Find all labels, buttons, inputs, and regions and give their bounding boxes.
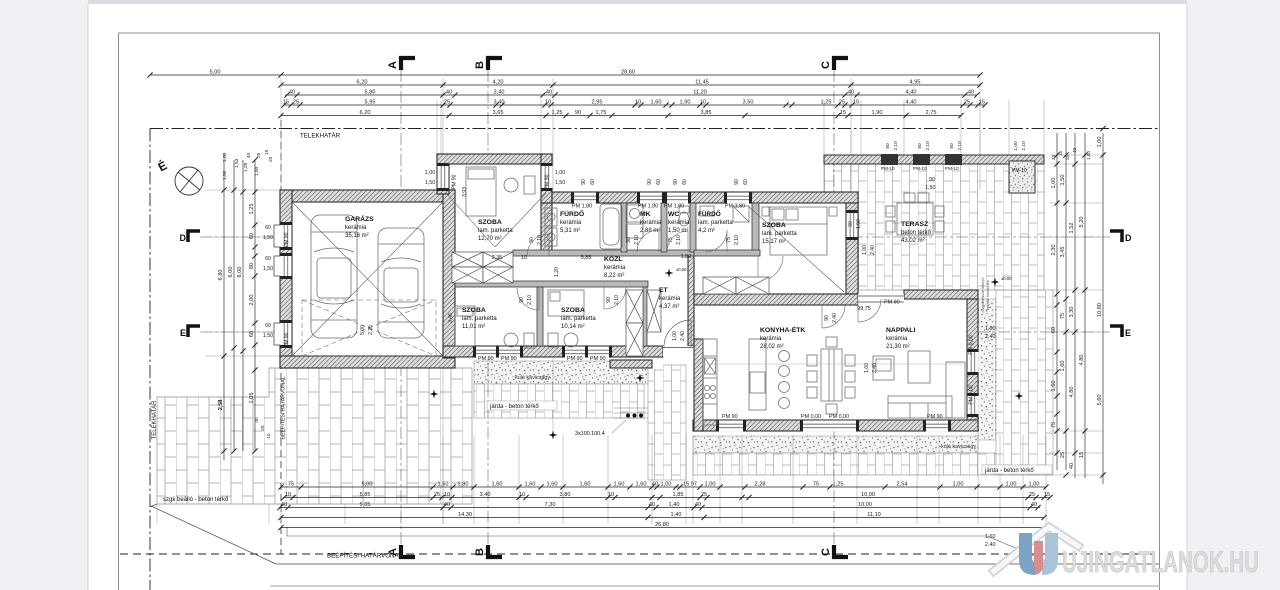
svg-text:4,80: 4,80 — [1079, 355, 1085, 366]
svg-text:1,50: 1,50 — [263, 266, 273, 272]
svg-text:2,40: 2,40 — [870, 245, 876, 255]
svg-text:43,02 m²: 43,02 m² — [901, 238, 925, 244]
svg-text:40: 40 — [446, 89, 452, 95]
svg-text:7,30: 7,30 — [545, 502, 556, 508]
svg-text:60: 60 — [265, 225, 271, 231]
svg-text:4,95: 4,95 — [910, 79, 921, 85]
svg-text:A: A — [387, 548, 399, 556]
svg-text:1,75: 1,75 — [596, 110, 607, 116]
svg-text:50: 50 — [917, 143, 923, 149]
svg-text:2,95: 2,95 — [592, 99, 603, 105]
svg-text:60: 60 — [682, 179, 688, 185]
svg-text:1,60: 1,60 — [1051, 381, 1057, 392]
svg-text:1,00: 1,00 — [1097, 137, 1103, 148]
svg-text:5,00: 5,00 — [210, 69, 221, 75]
svg-text:3,80: 3,80 — [560, 492, 571, 498]
svg-text:NAPPALI: NAPPALI — [886, 327, 915, 334]
svg-text:10: 10 — [519, 492, 525, 498]
svg-text:1,53: 1,53 — [234, 158, 240, 168]
svg-text:1,60: 1,60 — [651, 99, 662, 105]
svg-text:KONYHA-ÉTK: KONYHA-ÉTK — [760, 325, 805, 334]
svg-text:1,25: 1,25 — [249, 204, 255, 215]
svg-text:2,10: 2,10 — [537, 235, 543, 245]
svg-text:PM 1,80: PM 1,80 — [572, 204, 592, 210]
svg-text:40: 40 — [848, 89, 854, 95]
svg-text:A: A — [387, 61, 399, 69]
svg-text:1,90: 1,90 — [680, 99, 691, 105]
svg-text:GARÁZS: GARÁZS — [345, 214, 374, 223]
svg-text:1,40: 1,40 — [669, 502, 680, 508]
svg-text:3,40: 3,40 — [494, 89, 505, 95]
svg-text:2,36: 2,36 — [492, 255, 503, 261]
svg-text:90: 90 — [929, 177, 935, 183]
svg-text:90: 90 — [626, 237, 632, 243]
svg-text:40: 40 — [649, 502, 655, 508]
svg-text:25: 25 — [701, 492, 707, 498]
svg-text:1,25: 1,25 — [243, 162, 249, 172]
svg-text:90: 90 — [581, 179, 587, 185]
svg-text:1,60: 1,60 — [547, 481, 558, 487]
svg-text:60: 60 — [265, 256, 271, 262]
svg-text:1,50: 1,50 — [263, 333, 273, 339]
svg-text:kerámia: kerámia — [604, 265, 626, 271]
svg-text:PM 90: PM 90 — [545, 174, 551, 189]
svg-text:2,25: 2,25 — [368, 325, 374, 335]
svg-text:szgk beálló - beton térkő: szgk beálló - beton térkő — [163, 497, 229, 503]
svg-text:75: 75 — [1051, 422, 1057, 428]
svg-text:beton térkő: beton térkő — [901, 230, 932, 236]
svg-text:1,40: 1,40 — [671, 512, 682, 518]
svg-text:B: B — [474, 61, 486, 69]
svg-text:2,40: 2,40 — [832, 313, 838, 323]
svg-text:1,60: 1,60 — [864, 363, 870, 373]
svg-text:kerámia: kerámia — [668, 220, 690, 226]
svg-text:UJINGATLANOK.HU: UJINGATLANOK.HU — [1062, 546, 1259, 579]
svg-text:99,75: 99,75 — [857, 306, 871, 312]
svg-text:SZOBA: SZOBA — [478, 219, 502, 226]
svg-text:D: D — [1125, 233, 1132, 243]
svg-text:PM 90: PM 90 — [722, 414, 738, 420]
svg-text:5,60: 5,60 — [1097, 395, 1103, 406]
svg-text:1,00: 1,00 — [222, 152, 228, 162]
svg-text:40: 40 — [1069, 463, 1075, 469]
svg-text:25: 25 — [434, 492, 440, 498]
svg-text:PM 0,00: PM 0,00 — [829, 414, 849, 420]
svg-text:PM 90: PM 90 — [284, 332, 290, 347]
svg-text:2,10: 2,10 — [957, 141, 963, 151]
svg-text:40: 40 — [695, 502, 701, 508]
svg-text:10: 10 — [608, 492, 614, 498]
svg-text:lam. parketta: lam. parketta — [762, 231, 797, 237]
svg-text:10: 10 — [635, 99, 641, 105]
svg-text:40: 40 — [1031, 502, 1037, 508]
svg-text:1,00: 1,00 — [661, 481, 672, 487]
svg-text:1,50: 1,50 — [1060, 175, 1066, 186]
svg-text:15: 15 — [1044, 492, 1050, 498]
svg-text:1,00: 1,00 — [862, 245, 868, 255]
svg-text:75: 75 — [1060, 313, 1066, 319]
svg-text:FÜRDŐ: FÜRDŐ — [698, 209, 721, 218]
svg-text:75: 75 — [726, 237, 732, 243]
svg-text:1,50: 1,50 — [263, 235, 273, 241]
svg-text:PM 90: PM 90 — [284, 232, 290, 247]
svg-text:lam. parketta: lam. parketta — [478, 228, 513, 234]
svg-text:15: 15 — [266, 433, 271, 439]
svg-text:3,40: 3,40 — [494, 99, 505, 105]
svg-text:50: 50 — [885, 143, 891, 149]
svg-text:1,60: 1,60 — [985, 534, 996, 540]
svg-text:E: E — [180, 328, 186, 338]
svg-text:TELEKHATÁR: TELEKHATÁR — [151, 400, 158, 440]
svg-text:60: 60 — [249, 233, 255, 239]
svg-text:11,45: 11,45 — [695, 79, 709, 85]
svg-text:1,52: 1,52 — [1069, 223, 1075, 234]
svg-text:4,20: 4,20 — [493, 79, 504, 85]
svg-text:25: 25 — [1060, 452, 1066, 458]
svg-text:3,45: 3,45 — [1060, 247, 1066, 258]
svg-text:PM 1,80: PM 1,80 — [664, 204, 684, 210]
svg-text:3x100.100.4: 3x100.100.4 — [575, 431, 605, 437]
svg-text:90: 90 — [606, 297, 612, 303]
svg-text:6,80: 6,80 — [218, 270, 224, 281]
svg-text:35,16 m²: 35,16 m² — [345, 233, 369, 239]
svg-text:B: B — [474, 548, 486, 556]
svg-text:1,00: 1,00 — [1086, 151, 1091, 160]
svg-text:50: 50 — [949, 143, 955, 149]
svg-text:2,10: 2,10 — [734, 235, 740, 245]
svg-text:1,05: 1,05 — [249, 393, 255, 404]
svg-text:lam. parketta: lam. parketta — [462, 316, 497, 322]
svg-text:60: 60 — [1051, 327, 1057, 333]
svg-text:2,40: 2,40 — [680, 331, 686, 341]
svg-text:TELEKHATÁR: TELEKHATÁR — [300, 133, 341, 140]
svg-text:14,30: 14,30 — [458, 512, 472, 518]
svg-text:15: 15 — [1058, 150, 1063, 156]
svg-text:PM 90: PM 90 — [884, 300, 900, 306]
svg-text:6,00: 6,00 — [237, 267, 243, 278]
svg-text:1,00: 1,00 — [705, 481, 716, 487]
svg-text:10,00: 10,00 — [858, 502, 872, 508]
svg-text:1,50: 1,50 — [555, 180, 566, 186]
svg-text:90: 90 — [848, 221, 854, 227]
svg-text:5,00: 5,00 — [362, 481, 373, 487]
svg-text:kerámia: kerámia — [760, 336, 782, 342]
svg-text:3,65: 3,65 — [493, 110, 504, 116]
svg-text:PM 0,00: PM 0,00 — [969, 335, 975, 354]
svg-text:3,46: 3,46 — [448, 313, 454, 323]
svg-text:3,93: 3,93 — [462, 187, 468, 197]
svg-text:5,20: 5,20 — [1079, 217, 1085, 228]
svg-text:4,40: 4,40 — [906, 99, 917, 105]
svg-text:PM 0,00: PM 0,00 — [801, 414, 821, 420]
svg-text:3,40: 3,40 — [480, 492, 491, 498]
svg-text:1,00: 1,00 — [953, 481, 964, 487]
svg-text:40: 40 — [546, 89, 552, 95]
svg-text:90: 90 — [529, 237, 535, 243]
svg-text:90: 90 — [519, 297, 525, 303]
svg-text:60: 60 — [249, 331, 255, 337]
svg-text:2,10: 2,10 — [925, 141, 931, 151]
svg-text:1,25: 1,25 — [552, 110, 563, 116]
svg-text:1,20: 1,20 — [554, 267, 560, 277]
svg-text:10: 10 — [545, 99, 551, 105]
svg-text:15: 15 — [853, 99, 859, 105]
svg-text:6,20: 6,20 — [357, 79, 368, 85]
svg-text:PM 90: PM 90 — [567, 356, 583, 362]
svg-text:1,80: 1,80 — [681, 254, 692, 260]
svg-text:SZOBA: SZOBA — [462, 307, 486, 314]
svg-text:MK: MK — [640, 211, 651, 218]
svg-text:PM 90: PM 90 — [452, 174, 458, 189]
svg-text:5,85: 5,85 — [360, 492, 371, 498]
svg-text:lam. parketta: lam. parketta — [561, 316, 596, 322]
svg-text:60: 60 — [590, 179, 596, 185]
svg-text:2,10: 2,10 — [676, 235, 682, 245]
svg-text:40: 40 — [281, 502, 287, 508]
svg-text:tetővíz elvezetés: tetővíz elvezetés — [985, 280, 990, 310]
svg-text:kerámia: kerámia — [345, 225, 367, 231]
svg-text:D: D — [180, 233, 187, 243]
svg-text:40: 40 — [968, 89, 974, 95]
svg-text:2,75: 2,75 — [926, 110, 937, 116]
svg-text:PM 90: PM 90 — [590, 356, 606, 362]
svg-text:PM-10: PM-10 — [1012, 168, 1027, 174]
svg-text:±0,00: ±0,00 — [676, 267, 687, 272]
svg-text:PM-10: PM-10 — [881, 166, 895, 171]
svg-text:5,31 m²: 5,31 m² — [560, 228, 580, 234]
svg-text:WC: WC — [668, 211, 679, 218]
svg-text:5,00: 5,00 — [360, 325, 366, 335]
svg-text:10: 10 — [700, 99, 706, 105]
svg-text:lam. parketta: lam. parketta — [698, 220, 733, 226]
svg-text:15: 15 — [1079, 452, 1085, 458]
svg-text:90: 90 — [673, 179, 679, 185]
svg-text:2,40: 2,40 — [985, 542, 996, 548]
svg-text:TERASZ: TERASZ — [901, 221, 928, 228]
svg-text:1,50: 1,50 — [925, 185, 936, 191]
svg-text:2,10: 2,10 — [1021, 141, 1027, 151]
svg-text:90: 90 — [575, 110, 581, 116]
svg-text:4,2 m²: 4,2 m² — [698, 228, 715, 234]
svg-text:15: 15 — [979, 99, 985, 105]
svg-text:SZOBA: SZOBA — [561, 307, 585, 314]
svg-text:15: 15 — [283, 99, 289, 105]
svg-text:2,10: 2,10 — [527, 295, 533, 305]
svg-text:PM 90: PM 90 — [501, 356, 517, 362]
svg-text:10: 10 — [444, 492, 450, 498]
svg-text:1,60: 1,60 — [525, 481, 536, 487]
svg-text:járda - beton térkő: járda - beton térkő — [984, 468, 1034, 474]
svg-text:1,60: 1,60 — [492, 481, 503, 487]
svg-text:kerámia: kerámia — [659, 296, 681, 302]
svg-text:15,17 m²: 15,17 m² — [762, 239, 786, 245]
svg-text:3,85: 3,85 — [701, 110, 712, 116]
svg-text:60: 60 — [656, 179, 662, 185]
svg-text:10,80: 10,80 — [1097, 303, 1103, 317]
svg-text:75: 75 — [288, 481, 294, 487]
svg-text:4,80: 4,80 — [1069, 387, 1075, 398]
svg-text:1,00: 1,00 — [1029, 481, 1040, 487]
svg-text:kerámia: kerámia — [886, 336, 908, 342]
svg-text:PM 0,00: PM 0,00 — [969, 385, 975, 404]
svg-text:25: 25 — [839, 99, 845, 105]
svg-text:C: C — [820, 61, 832, 69]
svg-text:járda - beton térkő: járda - beton térkő — [489, 404, 539, 410]
svg-text:2,28: 2,28 — [755, 481, 766, 487]
svg-text:2,10: 2,10 — [634, 235, 640, 245]
svg-text:90: 90 — [824, 315, 830, 321]
svg-text:2,88 m²: 2,88 m² — [640, 228, 660, 234]
svg-text:1,90: 1,90 — [872, 110, 883, 116]
svg-text:1,25: 1,25 — [821, 99, 832, 105]
svg-text:PM 90: PM 90 — [478, 356, 494, 362]
svg-text:1,85: 1,85 — [673, 492, 684, 498]
svg-text:kerámia: kerámia — [640, 220, 662, 226]
svg-text:15: 15 — [840, 110, 846, 116]
svg-text:PM-10: PM-10 — [913, 166, 927, 171]
svg-text:20: 20 — [268, 156, 274, 162]
svg-text:1,00: 1,00 — [555, 170, 566, 176]
svg-text:40: 40 — [444, 502, 450, 508]
svg-text:PM 1,80: PM 1,80 — [725, 204, 745, 210]
svg-text:2,30: 2,30 — [1051, 245, 1057, 256]
svg-text:2,40: 2,40 — [985, 334, 996, 340]
svg-text:11,01 m²: 11,01 m² — [462, 324, 485, 330]
svg-text:28,60: 28,60 — [621, 69, 635, 75]
svg-text:4,37 m²: 4,37 m² — [659, 304, 679, 310]
svg-text:1,60: 1,60 — [580, 481, 591, 487]
svg-text:5,85: 5,85 — [581, 255, 592, 261]
svg-text:40: 40 — [1072, 147, 1077, 153]
svg-text:60: 60 — [265, 323, 271, 329]
svg-text:1,60: 1,60 — [1060, 361, 1066, 372]
svg-text:1,60: 1,60 — [438, 481, 449, 487]
svg-text:5,80: 5,80 — [365, 89, 376, 95]
svg-text:FÜRDŐ: FÜRDŐ — [560, 209, 584, 218]
svg-text:2,58: 2,58 — [218, 400, 224, 411]
svg-text:10,14 m²: 10,14 m² — [561, 324, 585, 330]
svg-text:1,00: 1,00 — [672, 331, 678, 341]
svg-text:2,00: 2,00 — [249, 295, 255, 306]
svg-text:2,10: 2,10 — [614, 295, 620, 305]
svg-text:2,54: 2,54 — [897, 481, 908, 487]
svg-text:1,00: 1,00 — [1013, 141, 1019, 151]
svg-text:11,20: 11,20 — [693, 89, 707, 95]
svg-text:25: 25 — [964, 99, 970, 105]
svg-text:90: 90 — [734, 179, 740, 185]
svg-text:25: 25 — [1065, 154, 1070, 160]
svg-text:3,50: 3,50 — [743, 99, 754, 105]
svg-text:PM 90: PM 90 — [927, 414, 943, 420]
svg-text:25: 25 — [444, 99, 450, 105]
svg-text:1,80: 1,80 — [458, 481, 469, 487]
svg-text:1,60: 1,60 — [636, 481, 647, 487]
svg-text:10: 10 — [285, 492, 291, 498]
svg-text:4,40: 4,40 — [906, 89, 917, 95]
svg-text:25: 25 — [293, 99, 299, 105]
svg-text:1,50: 1,50 — [856, 219, 862, 229]
svg-text:6,00: 6,00 — [228, 267, 234, 278]
svg-text:2,40: 2,40 — [872, 363, 878, 373]
svg-text:kulé kavicságy: kulé kavicságy — [515, 375, 550, 381]
svg-text:40: 40 — [246, 152, 252, 158]
svg-text:26,80: 26,80 — [655, 522, 669, 528]
svg-text:1,60: 1,60 — [614, 481, 625, 487]
svg-text:90: 90 — [647, 179, 653, 185]
svg-text:6,20: 6,20 — [360, 110, 371, 116]
svg-text:1,50 m²: 1,50 m² — [668, 228, 688, 234]
svg-text:10,90: 10,90 — [861, 492, 875, 498]
svg-text:15 97: 15 97 — [683, 481, 697, 487]
svg-text:kerámia: kerámia — [560, 220, 582, 226]
svg-text:25: 25 — [1029, 492, 1035, 498]
svg-text:12,70 m²: 12,70 m² — [478, 236, 502, 242]
svg-text:25: 25 — [256, 152, 262, 158]
svg-text:28,02 m²: 28,02 m² — [760, 344, 784, 350]
svg-text:21,30 m²: 21,30 m² — [886, 344, 910, 350]
svg-text:75: 75 — [668, 237, 674, 243]
svg-text:5,05: 5,05 — [360, 502, 371, 508]
svg-text:C: C — [820, 548, 832, 556]
svg-text:kulé kavicságy: kulé kavicságy — [941, 444, 976, 450]
svg-text:±0,00: ±0,00 — [1001, 276, 1012, 281]
svg-text:1,50: 1,50 — [425, 180, 436, 186]
svg-text:8,22 m²: 8,22 m² — [604, 273, 624, 279]
svg-text:40: 40 — [652, 481, 658, 487]
svg-text:1,25: 1,25 — [833, 481, 844, 487]
svg-text:1,00: 1,00 — [1006, 481, 1017, 487]
svg-text:PM 1,80: PM 1,80 — [638, 204, 658, 210]
svg-text:5,95: 5,95 — [365, 99, 376, 105]
svg-text:40: 40 — [289, 89, 295, 95]
svg-text:15: 15 — [264, 149, 270, 155]
svg-text:1,00: 1,00 — [425, 170, 436, 176]
svg-text:11,10: 11,10 — [867, 512, 881, 518]
svg-text:BEÉPÍTÉSI HATÁRVONAL: BEÉPÍTÉSI HATÁRVONAL — [280, 376, 287, 439]
svg-text:ET: ET — [659, 287, 669, 294]
svg-text:10: 10 — [521, 255, 527, 261]
svg-text:1,90: 1,90 — [254, 166, 260, 176]
svg-text:33: 33 — [1051, 154, 1056, 160]
svg-text:75: 75 — [813, 481, 819, 487]
svg-text:25: 25 — [260, 425, 265, 431]
svg-text:3,30: 3,30 — [1069, 307, 1075, 318]
svg-text:KÖZL: KÖZL — [604, 254, 623, 263]
svg-text:PM-10: PM-10 — [945, 166, 959, 171]
svg-text:1,50: 1,50 — [222, 170, 228, 180]
svg-text:SZOBA: SZOBA — [762, 222, 786, 229]
svg-text:E: E — [1125, 328, 1131, 338]
svg-text:2,10: 2,10 — [893, 141, 899, 151]
svg-text:60: 60 — [743, 179, 749, 185]
svg-text:80: 80 — [249, 263, 255, 269]
svg-text:1,00: 1,00 — [1051, 178, 1057, 189]
svg-text:1,60: 1,60 — [985, 326, 996, 332]
